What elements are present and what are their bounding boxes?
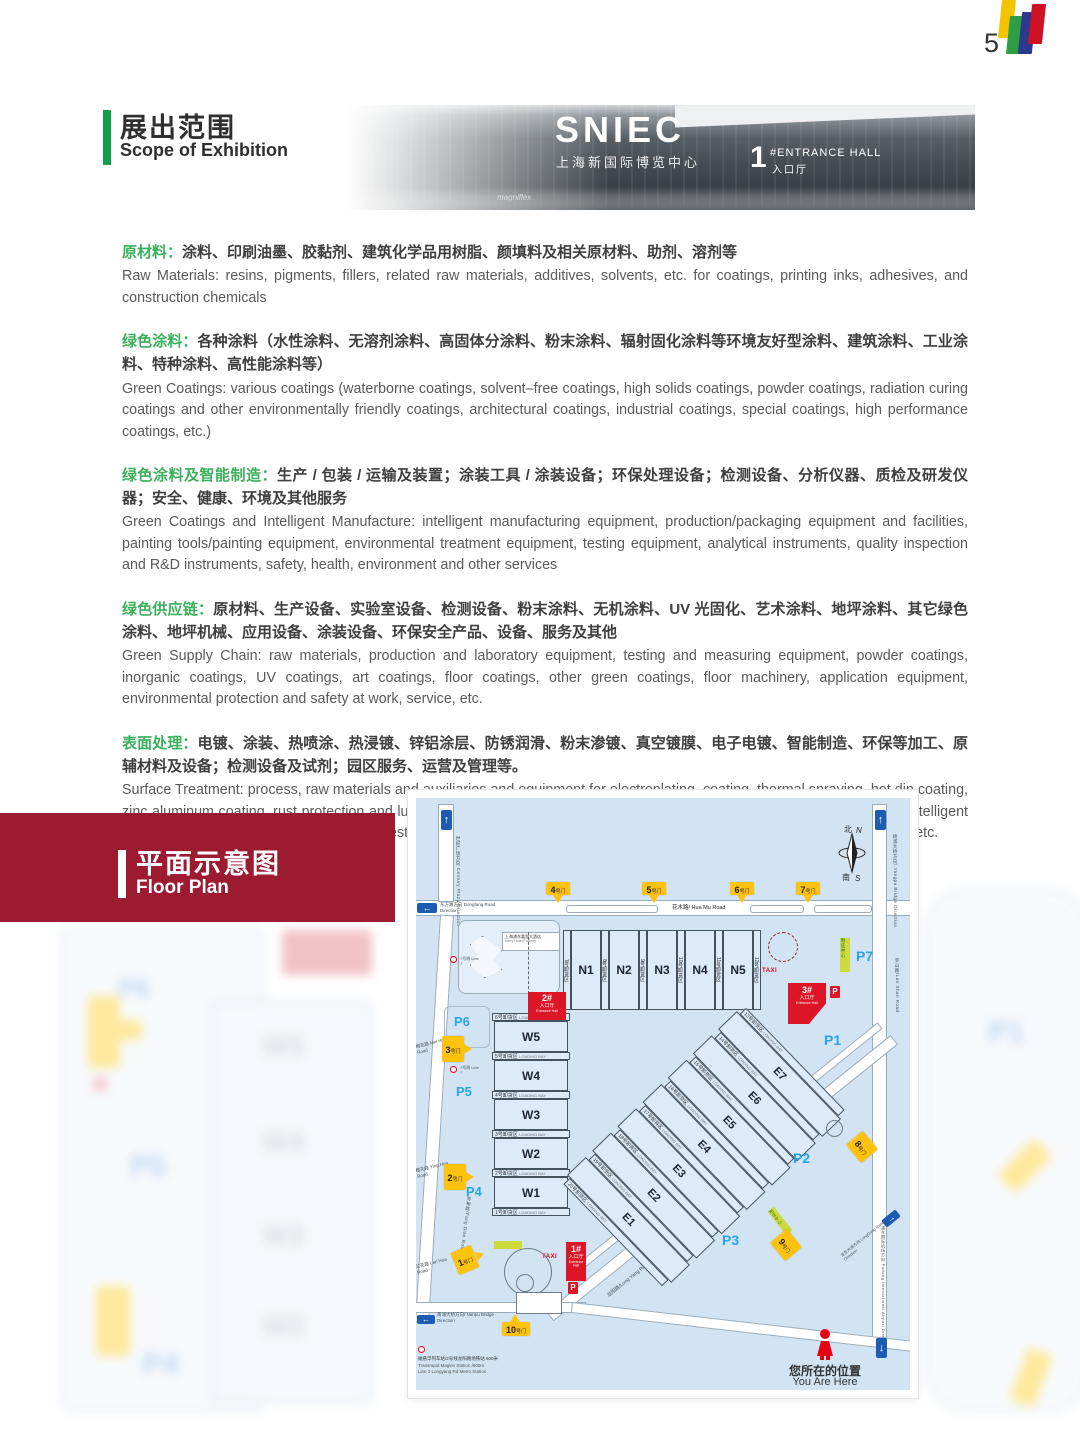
entrance-hall-3: 3#入口厅Entrance Hall bbox=[788, 983, 826, 1024]
roundabout-south-inner bbox=[516, 1274, 534, 1292]
entrance-canopy bbox=[516, 1292, 562, 1314]
metro-line7-icon bbox=[450, 956, 457, 963]
hotel-label: 上海浦东嘉里大酒店 Kerry Hotel Pudong bbox=[502, 932, 560, 951]
section-label: 绿色供应链： bbox=[122, 601, 213, 618]
entrance-hall-2: 2#入口厅Entrance Hall bbox=[528, 992, 566, 1020]
gate-6-arrow bbox=[737, 895, 747, 903]
hall-n1: N1 bbox=[571, 930, 601, 1010]
direction-century: 世纪广场方向 Century Plaza Direction bbox=[455, 836, 461, 906]
gate-10-arrow bbox=[510, 1314, 520, 1322]
floorplan-banner: 平面示意图 Floor Plan bbox=[0, 813, 395, 922]
parking-p4: P4 bbox=[466, 1184, 482, 1199]
direction-nanpu: 南浦大桥方向/ Nanpu Bridge Direction bbox=[437, 1312, 507, 1323]
gate-3: 3号门 bbox=[442, 1036, 464, 1062]
floorplan-title-en: Floor Plan bbox=[136, 877, 229, 899]
hall-n3: N3 bbox=[647, 930, 677, 1010]
section-label: 表面处理： bbox=[122, 735, 198, 752]
compass: 北 N 南 S bbox=[836, 822, 870, 884]
gate-7: 7号门 bbox=[796, 882, 820, 895]
gate-2: 2号门 bbox=[444, 1164, 466, 1190]
entrance-hall-1: 1#入口厅Entrance Hall bbox=[566, 1242, 586, 1281]
section-intelligent-manufacture: 绿色涂料及智能制造：生产 / 包装 / 运输及装置；涂装工具 / 涂装设备；环保… bbox=[122, 464, 968, 577]
loading-bay-w: 2号卸货区 LOADING BAY bbox=[492, 1169, 570, 1177]
loading-bay-n: 9号卸货区 bbox=[639, 930, 647, 1010]
gate-9: 9号门 bbox=[770, 1229, 802, 1262]
arrow-west-icon: ← bbox=[417, 903, 437, 913]
metro-line7-label-2: 7号线 Line 7 bbox=[460, 1065, 482, 1075]
hall-w3: W3 bbox=[494, 1099, 568, 1130]
road-huamu-label: 花木路/ Hua Mu Road bbox=[672, 905, 726, 912]
sniec-photo: SNIEC 上海新国际博览中心 1 #ENTRANCE HALL 入口厅 mag… bbox=[345, 105, 975, 210]
loading-bay-n: 12号卸货区 bbox=[753, 930, 761, 1010]
parking-p2: P2 bbox=[793, 1150, 810, 1166]
section-en: Raw Materials: resins, pigments, fillers… bbox=[122, 266, 968, 309]
hall-w5: W5 bbox=[494, 1021, 568, 1052]
gate-6: 6号门 bbox=[730, 882, 754, 895]
parking-p7: P7 bbox=[856, 948, 873, 964]
direction-yangpu: 杨浦大桥方向/ Yangpu Bridge Direction bbox=[892, 834, 898, 914]
gate-5-arrow bbox=[649, 895, 659, 903]
hall-w1: W1 bbox=[494, 1177, 568, 1208]
direction-dongfang: 东方路方向 Dongfang Road Direction bbox=[440, 902, 500, 913]
loading-bay-w: 1号卸货区 LOADING BAY bbox=[492, 1208, 570, 1216]
floorplan-title-zh: 平面示意图 bbox=[136, 842, 281, 881]
hall-w2: W2 bbox=[494, 1138, 568, 1169]
svg-text:北: 北 bbox=[844, 825, 852, 834]
parking-p1: P1 bbox=[824, 1032, 841, 1048]
section-zh: 电镀、涂装、热喷涂、热浸镀、锌铝涂层、防锈润滑、粉末渗镀、真空镀膜、电子电镀、智… bbox=[122, 735, 968, 775]
hall-n4: N4 bbox=[685, 930, 715, 1010]
parking-sign-1: P bbox=[568, 1282, 578, 1294]
brochure-page: 5 展出范围 Scope of Exhibition SNIEC 上海新国际博览… bbox=[0, 0, 1080, 1430]
transit-en1: Transrapid Maglev Station /600m bbox=[418, 1363, 484, 1369]
section-en: Green Supply Chain: raw materials, produ… bbox=[122, 646, 968, 710]
arrow-north-icon: ↑ bbox=[441, 810, 452, 830]
transit-zh: 磁悬浮列车站/2号线龙阳路地铁站 600米 bbox=[418, 1356, 498, 1362]
road-luoshan-label: 罗山路/Luo Shan Road bbox=[894, 958, 900, 1022]
dashed-path bbox=[528, 932, 529, 994]
taxi-label-north: TAXI bbox=[762, 968, 777, 974]
metro-line7-label: 7号线 Line 7 bbox=[460, 956, 482, 966]
hall-w4: W4 bbox=[494, 1060, 568, 1091]
metro-icon-note bbox=[418, 1346, 425, 1353]
badge-center-west: 制证中心 bbox=[494, 1241, 522, 1249]
section-en: Green Coatings and Intelligent Manufactu… bbox=[122, 512, 968, 576]
hall-n5: N5 bbox=[723, 930, 753, 1010]
transit-en2: Line 2 Longyang Rd Metro Station bbox=[418, 1369, 486, 1375]
you-are-here-icon bbox=[812, 1328, 838, 1360]
floorplan-panel: ↑ 世纪广场方向 Century Plaza Direction ← 东方路方向… bbox=[408, 790, 918, 1398]
direction-airport: 浦东国际机场方向 Pudong International Airport Di… bbox=[880, 1226, 886, 1330]
section-zh: 各种涂料（水性涂料、无溶剂涂料、高固体分涂料、粉末涂料、辐射固化涂料等环境友好型… bbox=[122, 333, 968, 373]
loading-bay-w: 3号卸货区 LOADING BAY bbox=[492, 1130, 570, 1138]
gate-5: 5号门 bbox=[642, 882, 666, 895]
scope-sections: 原材料：涂料、印刷油墨、胶黏剂、建筑化学品用树脂、颜填料及相关原材料、助剂、溶剂… bbox=[122, 241, 968, 865]
parking-p5: P5 bbox=[456, 1084, 472, 1099]
loading-bay-w: 4号卸货区 LOADING BAY bbox=[492, 1091, 570, 1099]
svg-text:S: S bbox=[855, 874, 861, 883]
parking-sign-3: P bbox=[830, 986, 840, 998]
section-label: 绿色涂料及智能制造： bbox=[122, 467, 277, 484]
gate-2-arrow bbox=[466, 1172, 474, 1182]
loading-bay-n: 10号卸货区 bbox=[677, 930, 685, 1010]
gate-3-arrow bbox=[464, 1044, 472, 1054]
gate-4-arrow bbox=[553, 895, 563, 903]
arrow-yangpu-icon: ↑ bbox=[875, 810, 886, 830]
loading-bay-n: 8号卸货区 bbox=[601, 930, 609, 1010]
roundabout-east bbox=[826, 1120, 843, 1137]
section-zh: 原材料、生产设备、实验室设备、检测设备、粉末涂料、无机涂料、UV 光固化、艺术涂… bbox=[122, 601, 968, 641]
section-green-supply-chain: 绿色供应链：原材料、生产设备、实验室设备、检测设备、粉末涂料、无机涂料、UV 光… bbox=[122, 598, 968, 711]
gate-4: 4号门 bbox=[546, 882, 570, 895]
gate-1: 1号门 bbox=[450, 1245, 479, 1275]
road-south-diagonal bbox=[571, 1302, 910, 1354]
scope-title-en: Scope of Exhibition bbox=[120, 140, 288, 161]
floorplan-accent-bar bbox=[118, 850, 126, 898]
section-raw-materials: 原材料：涂料、印刷油墨、胶黏剂、建筑化学品用树脂、颜填料及相关原材料、助剂、溶剂… bbox=[122, 241, 968, 309]
hall-n2: N2 bbox=[609, 930, 639, 1010]
parking-p3: P3 bbox=[722, 1232, 739, 1248]
section-zh: 涂料、印刷油墨、胶黏剂、建筑化学品用树脂、颜填料及相关原材料、助剂、溶剂等 bbox=[182, 244, 737, 261]
loading-bay-n: 11号卸货区 bbox=[715, 930, 723, 1010]
gate-10: 10号门 bbox=[502, 1322, 530, 1336]
page-number: 5 bbox=[984, 28, 999, 59]
section-en: Green Coatings: various coatings (waterb… bbox=[122, 379, 968, 443]
badge-center-east: 制证中心 bbox=[840, 938, 850, 972]
logo-ribbon-red bbox=[1028, 4, 1046, 44]
arrow-nanpu-icon: ← bbox=[417, 1315, 435, 1324]
loading-bay-w: 5号卸货区 LOADING BAY bbox=[492, 1052, 570, 1060]
floorplan-map: ↑ 世纪广场方向 Century Plaza Direction ← 东方路方向… bbox=[416, 798, 910, 1390]
photo-left-fade bbox=[345, 105, 975, 210]
you-are-here-en: You Are Here bbox=[774, 1376, 876, 1388]
arrow-airport-icon: ↓ bbox=[876, 1338, 887, 1358]
taxi-loop bbox=[768, 932, 798, 962]
gate-7-arrow bbox=[803, 895, 813, 903]
metro-line7-icon-2 bbox=[450, 1066, 457, 1073]
svg-text:南: 南 bbox=[842, 872, 850, 882]
section-green-coatings: 绿色涂料：各种涂料（水性涂料、无溶剂涂料、高固体分涂料、粉末涂料、辐射固化涂料等… bbox=[122, 330, 968, 443]
svg-text:N: N bbox=[856, 826, 862, 835]
scope-accent-bar bbox=[103, 110, 111, 165]
section-label: 绿色涂料： bbox=[122, 333, 198, 350]
section-label: 原材料： bbox=[122, 244, 182, 261]
